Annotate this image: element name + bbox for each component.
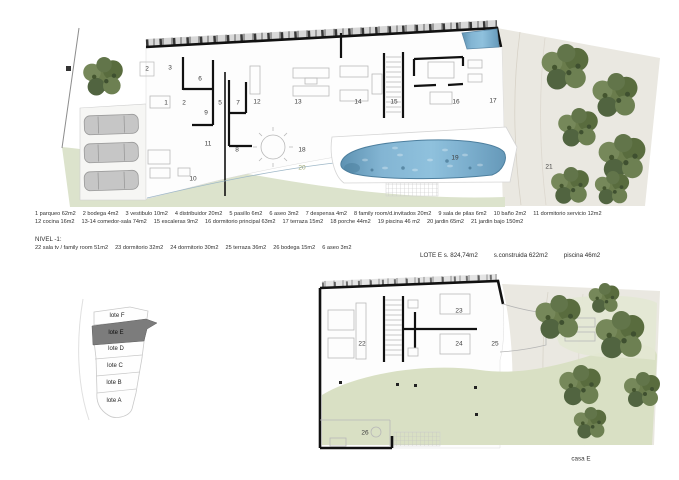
legend-item: 23 dormitorio 32m2	[115, 245, 163, 251]
legend-item: 22 sala tv / family room 51m2	[35, 245, 108, 251]
legend-item: 21 jardin bajo 150m2	[471, 219, 523, 225]
legend-item: 20 jardin 65m2	[427, 219, 464, 225]
upper-building	[80, 20, 517, 200]
legend-item: 2 bodega 4m2	[83, 211, 119, 217]
legend-item: 12 cocina 16m2	[35, 219, 75, 225]
legend-item: 25 terraza 36m2	[225, 245, 266, 251]
legend-item: 10 baño 2m2	[494, 211, 527, 217]
boundary-marker	[66, 66, 71, 71]
legend-item: 17 terraza 15m2	[283, 219, 324, 225]
lot-summary-item: piscina 46m2	[564, 252, 600, 259]
legend-item: 11 dormitorio servicio 12m2	[533, 211, 601, 217]
legend-item: 19 piscina 46 m2	[378, 219, 420, 225]
legend-item: 3 vestibulo 10m2	[126, 211, 168, 217]
legend-item: 4 distribuidor 20m2	[175, 211, 223, 217]
site-boundary-line	[62, 28, 79, 148]
legend-item: 7 despensa 4m2	[306, 211, 347, 217]
drawing-sheet: 236129571213141516171181810201921 232224…	[0, 0, 679, 480]
legend-item: 5 pasillo 6m2	[229, 211, 262, 217]
site-plan-graphics	[0, 0, 679, 480]
pergola-grid-upper	[386, 183, 438, 196]
legend-item: 1 parqueo 62m2	[35, 211, 76, 217]
lot-summary-row: LOTE E s. 824,74m2s.construida 622m2pisc…	[420, 252, 600, 259]
legend-item: 18 porche 44m2	[330, 219, 370, 225]
legend-level0-line1: 1 parqueo 62m22 bodega 4m23 vestibulo 10…	[35, 211, 602, 217]
legend-level1-line: 22 sala tv / family room 51m223 dormitor…	[35, 245, 351, 251]
lot-summary-item: s.construida 622m2	[494, 252, 548, 259]
parking-cars	[84, 114, 139, 191]
legend-item: 24 dormitorio 30m2	[170, 245, 218, 251]
legend-item: 6 aseo 3m2	[322, 245, 351, 251]
legend-item: 9 sala de pilas 6m2	[438, 211, 486, 217]
sheet-name-label: casa E	[571, 456, 590, 463]
lot-summary-item: LOTE E s. 824,74m2	[420, 252, 478, 259]
legend-level0-line2: 12 cocina 16m213-14 comedor-sala 74m215 …	[35, 219, 523, 225]
legend-item: 15 escaleras 9m2	[154, 219, 198, 225]
nivel-1-header: NIVEL -1:	[35, 236, 62, 243]
spa	[462, 29, 499, 49]
legend-item: 8 family room/d.invitados 20m2	[354, 211, 431, 217]
legend-item: 13-14 comedor-sala 74m2	[82, 219, 147, 225]
pergola-grid-lower	[394, 432, 440, 446]
legend-item: 16 dormitorio principal 63m2	[205, 219, 276, 225]
legend-item: 26 bodega 15m2	[273, 245, 315, 251]
legend-item: 6 aseo 3m2	[269, 211, 298, 217]
lot-map	[79, 299, 157, 420]
